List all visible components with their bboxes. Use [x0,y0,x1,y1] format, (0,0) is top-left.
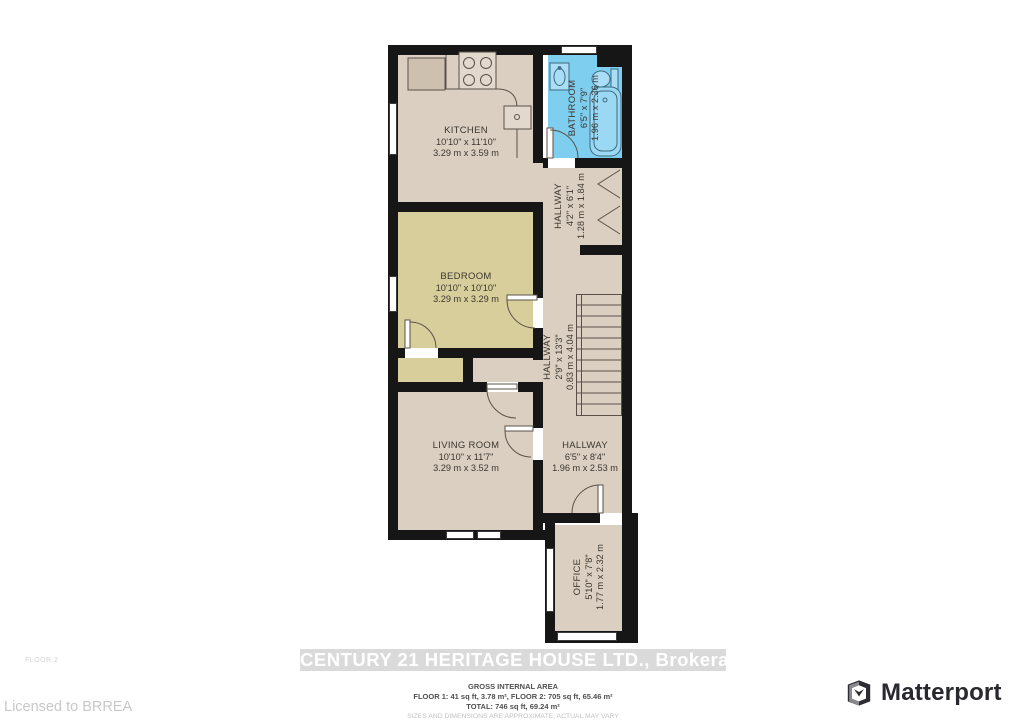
area-total: TOTAL: 746 sq ft, 69.24 m² [313,702,713,712]
room-label-hallway-lower: HALLWAY 6'5" x 8'4" 1.96 m x 2.53 m [552,440,618,475]
area-floors: FLOOR 1: 41 sq ft, 3.78 m², FLOOR 2: 705… [313,692,713,702]
room-label-kitchen: KITCHEN 10'10" x 11'10" 3.29 m x 3.59 m [433,125,499,160]
door-icon-living-side [505,426,533,457]
room-label-hallway-upper: HALLWAY 4'2" x 6'1" 1.28 m x 1.84 m [553,173,588,239]
stove-icon [459,52,496,89]
door-icon-bedroom [507,295,537,328]
plan-symbols [0,0,1024,723]
floor-plan-page: KITCHEN 10'10" x 11'10" 3.29 m x 3.59 m … [0,0,1024,723]
room-label-bedroom: BEDROOM 10'10" x 10'10" 3.29 m x 3.29 m [433,271,499,306]
matterport-icon [845,679,873,707]
room-label-hallway-stairs: HALLWAY 2'9" x 13'3" 0.83 m x 4.04 m [542,324,577,390]
dishwasher-icon [504,106,531,129]
area-title: GROSS INTERNAL AREA [313,682,713,692]
brokerage-banner: CENTURY 21 HERITAGE HOUSE LTD., Brokerag… [300,649,726,671]
matterport-logo: Matterport [845,679,1002,707]
area-disclaimer: SIZES AND DIMENSIONS ARE APPROXIMATE, AC… [313,712,713,722]
license-text: Licensed to BRREA [4,699,132,715]
matterport-wordmark: Matterport [881,679,1002,707]
fridge-icon [408,58,445,90]
floor-label: FLOOR 2 [25,657,58,664]
closet-bifold-doors-icon [598,170,620,234]
room-label-bathroom: BATHROOM 6'5" x 7'9" 1.96 m x 2.36 m [567,75,602,141]
room-label-living-room: LIVING ROOM 10'10" x 11'7" 3.29 m x 3.52… [433,440,500,475]
door-icon-closet [405,320,436,348]
door-icon-office [572,485,603,513]
gross-internal-area: GROSS INTERNAL AREA FLOOR 1: 41 sq ft, 3… [313,682,713,722]
room-label-office: OFFICE 5'10" x 7'8" 1.77 m x 2.32 m [572,544,607,610]
door-icon-living-top [487,384,517,418]
stairs-icon [577,295,622,416]
